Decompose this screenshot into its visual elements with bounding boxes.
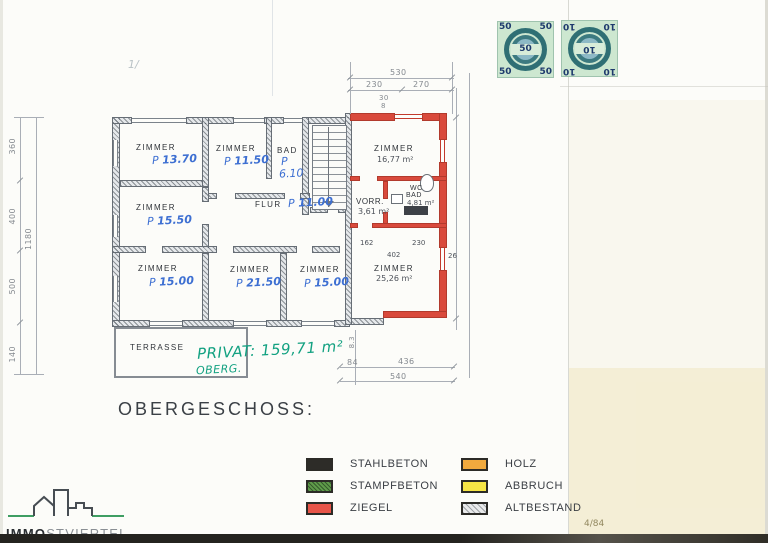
room-area-handwritten: P 15.00 bbox=[149, 274, 195, 289]
room-label: ZIMMER bbox=[138, 264, 178, 273]
revenue-stamp-50: 50 50 50 50 50 bbox=[497, 21, 554, 78]
room-label: ZIMMER bbox=[136, 203, 176, 212]
area-prefix: P bbox=[149, 276, 156, 289]
legend-row: ABBRUCH bbox=[461, 479, 582, 493]
dimension-line bbox=[14, 374, 44, 375]
dimension-label: 140 bbox=[8, 346, 17, 362]
stamp-value: 10 bbox=[563, 21, 576, 31]
room-area-handwritten: P 11.00 bbox=[288, 195, 334, 210]
room-area-pencil: 25,26 m² bbox=[376, 274, 412, 283]
room-label: ZIMMER bbox=[216, 144, 256, 153]
stamp-value: 10 bbox=[563, 66, 576, 76]
stamp-value: 10 bbox=[603, 21, 616, 31]
dimension-line bbox=[469, 73, 470, 378]
scan-edge-bottom bbox=[0, 534, 768, 543]
legend-row: STAMPFBETON bbox=[306, 479, 438, 493]
dimension-label: 230 bbox=[412, 239, 425, 247]
wall-segment bbox=[112, 117, 132, 124]
wall-segment bbox=[186, 117, 234, 124]
area-prefix: P bbox=[288, 197, 295, 210]
room-area-pencil: 4,81 m² bbox=[407, 199, 434, 207]
room-area-handwritten: P 11.50 bbox=[224, 153, 270, 168]
paper-tint bbox=[569, 368, 765, 534]
wall-segment-red bbox=[439, 113, 447, 140]
room-label: ZIMMER bbox=[374, 144, 414, 153]
legend-label: HOLZ bbox=[505, 458, 537, 470]
legend-label: ZIEGEL bbox=[350, 502, 393, 514]
bathtub-fixture bbox=[404, 206, 428, 215]
room-area-handwritten: P 15.00 bbox=[304, 275, 350, 290]
wall-segment bbox=[202, 187, 209, 202]
legend-row: STAHLBETON bbox=[306, 457, 438, 471]
window-opening bbox=[440, 248, 445, 270]
stamp-value: 50 bbox=[499, 67, 512, 77]
room-label: WC bbox=[410, 185, 423, 192]
window-opening bbox=[284, 118, 304, 123]
dimension-line bbox=[340, 381, 455, 382]
legend-swatch-abbruch bbox=[461, 480, 488, 493]
stamp-value-center: 50 bbox=[511, 44, 540, 55]
room-label: BAD bbox=[277, 146, 298, 155]
page-title: OBERGESCHOSS: bbox=[118, 399, 315, 420]
legend-row: HOLZ bbox=[461, 457, 582, 471]
dimension-label: 400 bbox=[8, 208, 17, 224]
legend-swatch-holz bbox=[461, 458, 488, 471]
wall-segment bbox=[348, 318, 384, 325]
area-value: 15.00 bbox=[159, 274, 194, 289]
dimension-label: 26 bbox=[448, 252, 457, 260]
room-area-handwritten: P 13.70 bbox=[152, 152, 198, 167]
room-area-pencil: 16,77 m² bbox=[377, 155, 413, 164]
legend-swatch-altbestand bbox=[461, 502, 488, 515]
window-opening bbox=[113, 215, 118, 237]
fold-crease bbox=[568, 0, 569, 534]
scan-edge bbox=[0, 0, 768, 2]
legend-swatch-ziegel bbox=[306, 502, 333, 515]
dimension-line bbox=[348, 78, 454, 79]
legend-label: STAMPFBETON bbox=[350, 480, 438, 492]
legend-swatch-stampfbeton bbox=[306, 480, 333, 493]
dimension-line bbox=[36, 117, 37, 375]
dimension-label: 402 bbox=[387, 251, 400, 259]
area-prefix: P bbox=[304, 277, 311, 290]
dimension-label: 230 bbox=[366, 80, 382, 89]
room-area-handwritten: P 15.50 bbox=[147, 213, 193, 228]
window-opening bbox=[234, 118, 264, 123]
dimension-label: 1180 bbox=[24, 228, 33, 250]
scanned-floor-plan-page: 50 50 50 50 50 10 10 10 10 10 1/ bbox=[0, 0, 768, 543]
dimension-label: 270 bbox=[413, 80, 429, 89]
fold-pencil-mark: 1/ bbox=[128, 58, 139, 71]
wall-segment bbox=[266, 117, 272, 179]
window-opening bbox=[395, 114, 422, 119]
wall-segment bbox=[112, 320, 150, 327]
dimension-label: 84 bbox=[347, 358, 358, 367]
wall-segment bbox=[162, 246, 217, 253]
fold-crease bbox=[560, 86, 768, 87]
room-label: BAD bbox=[406, 192, 422, 199]
dimension-label: 436 bbox=[398, 357, 414, 366]
window-opening bbox=[132, 118, 186, 123]
area-value: 15.00 bbox=[314, 275, 349, 290]
dimension-label: 360 bbox=[8, 138, 17, 154]
legend-row: ALTBESTAND bbox=[461, 501, 582, 515]
dimension-label: 530 bbox=[390, 68, 406, 77]
logo-skyline-icon bbox=[6, 486, 126, 520]
wall-segment-red bbox=[439, 162, 447, 248]
wall-segment bbox=[233, 246, 297, 253]
legend-label: STAHLBETON bbox=[350, 458, 428, 470]
wall-segment-red bbox=[350, 223, 358, 228]
area-value: 11.00 bbox=[298, 195, 333, 210]
wall-segment-red bbox=[383, 311, 447, 318]
dimension-tick bbox=[451, 363, 457, 369]
window-opening bbox=[302, 321, 334, 326]
stamp-value: 50 bbox=[539, 67, 552, 77]
dimension-line bbox=[340, 367, 455, 368]
dimension-label: 30 bbox=[379, 94, 389, 102]
room-label: FLUR bbox=[255, 200, 282, 209]
legend-swatch-stahlbeton bbox=[306, 458, 333, 471]
room-label-terrasse: TERRASSE bbox=[130, 343, 184, 352]
wall-segment bbox=[266, 320, 302, 327]
legend-label: ALTBESTAND bbox=[505, 502, 582, 514]
dimension-label: 540 bbox=[390, 372, 406, 381]
dimension-label: 8.3 bbox=[348, 336, 356, 348]
wall-segment bbox=[235, 193, 285, 199]
area-prefix: P bbox=[147, 215, 154, 228]
immostviertel-logo: IMMOSTVIERTEL bbox=[6, 486, 134, 541]
legend-row: ZIEGEL bbox=[306, 501, 438, 515]
dimension-label: 8 bbox=[381, 102, 386, 110]
fold-crease bbox=[272, 0, 273, 96]
revenue-stamp-10: 10 10 10 10 10 bbox=[561, 20, 618, 77]
dimension-line bbox=[14, 117, 44, 118]
dimension-label: 500 bbox=[8, 278, 17, 294]
area-value: 21.50 bbox=[246, 275, 281, 290]
room-label: ZIMMER bbox=[230, 265, 270, 274]
stamp-value: 10 bbox=[603, 66, 616, 76]
wall-segment bbox=[202, 117, 209, 187]
room-area-handwritten: P 21.50 bbox=[236, 275, 282, 290]
room-label: VORR. bbox=[356, 197, 384, 206]
area-value: 11.50 bbox=[234, 153, 269, 168]
area-value: 6.10 bbox=[279, 166, 304, 180]
room-label: ZIMMER bbox=[300, 265, 340, 274]
sink-fixture bbox=[391, 194, 403, 204]
wall-segment-red bbox=[350, 176, 360, 181]
window-opening bbox=[113, 140, 118, 166]
scan-edge bbox=[0, 0, 3, 543]
handwritten-floor-abbr: OBERG. bbox=[196, 362, 242, 377]
wall-segment bbox=[182, 320, 234, 327]
area-prefix: P bbox=[152, 154, 159, 167]
window-opening bbox=[113, 276, 118, 302]
area-prefix: P bbox=[236, 277, 243, 290]
area-value: 13.70 bbox=[162, 152, 197, 167]
wall-segment bbox=[312, 246, 340, 253]
area-prefix: P bbox=[281, 155, 288, 168]
wall-segment bbox=[112, 246, 146, 253]
area-value: 15.50 bbox=[157, 213, 192, 228]
wall-segment bbox=[202, 253, 209, 321]
dimension-label: 162 bbox=[360, 239, 373, 247]
room-label: ZIMMER bbox=[136, 143, 176, 152]
dimension-tick bbox=[451, 377, 457, 383]
dimension-line bbox=[20, 117, 21, 375]
wall-segment-red bbox=[350, 113, 395, 121]
room-label: ZIMMER bbox=[374, 264, 414, 273]
room-area-pencil: 3,61 m² bbox=[358, 207, 389, 216]
window-opening bbox=[150, 321, 182, 326]
wall-segment bbox=[120, 180, 205, 187]
stamp-value: 50 bbox=[499, 22, 512, 32]
area-prefix: P bbox=[224, 155, 231, 168]
page-number: 4/84 bbox=[584, 519, 604, 529]
wall-segment-red bbox=[372, 223, 447, 228]
stamp-value: 50 bbox=[539, 22, 552, 32]
legend-label: ABBRUCH bbox=[505, 480, 563, 492]
stamp-value-center: 10 bbox=[575, 43, 604, 54]
window-opening bbox=[440, 140, 445, 162]
wall-segment bbox=[202, 224, 209, 248]
dimension-line bbox=[456, 88, 457, 330]
window-opening bbox=[234, 321, 266, 326]
